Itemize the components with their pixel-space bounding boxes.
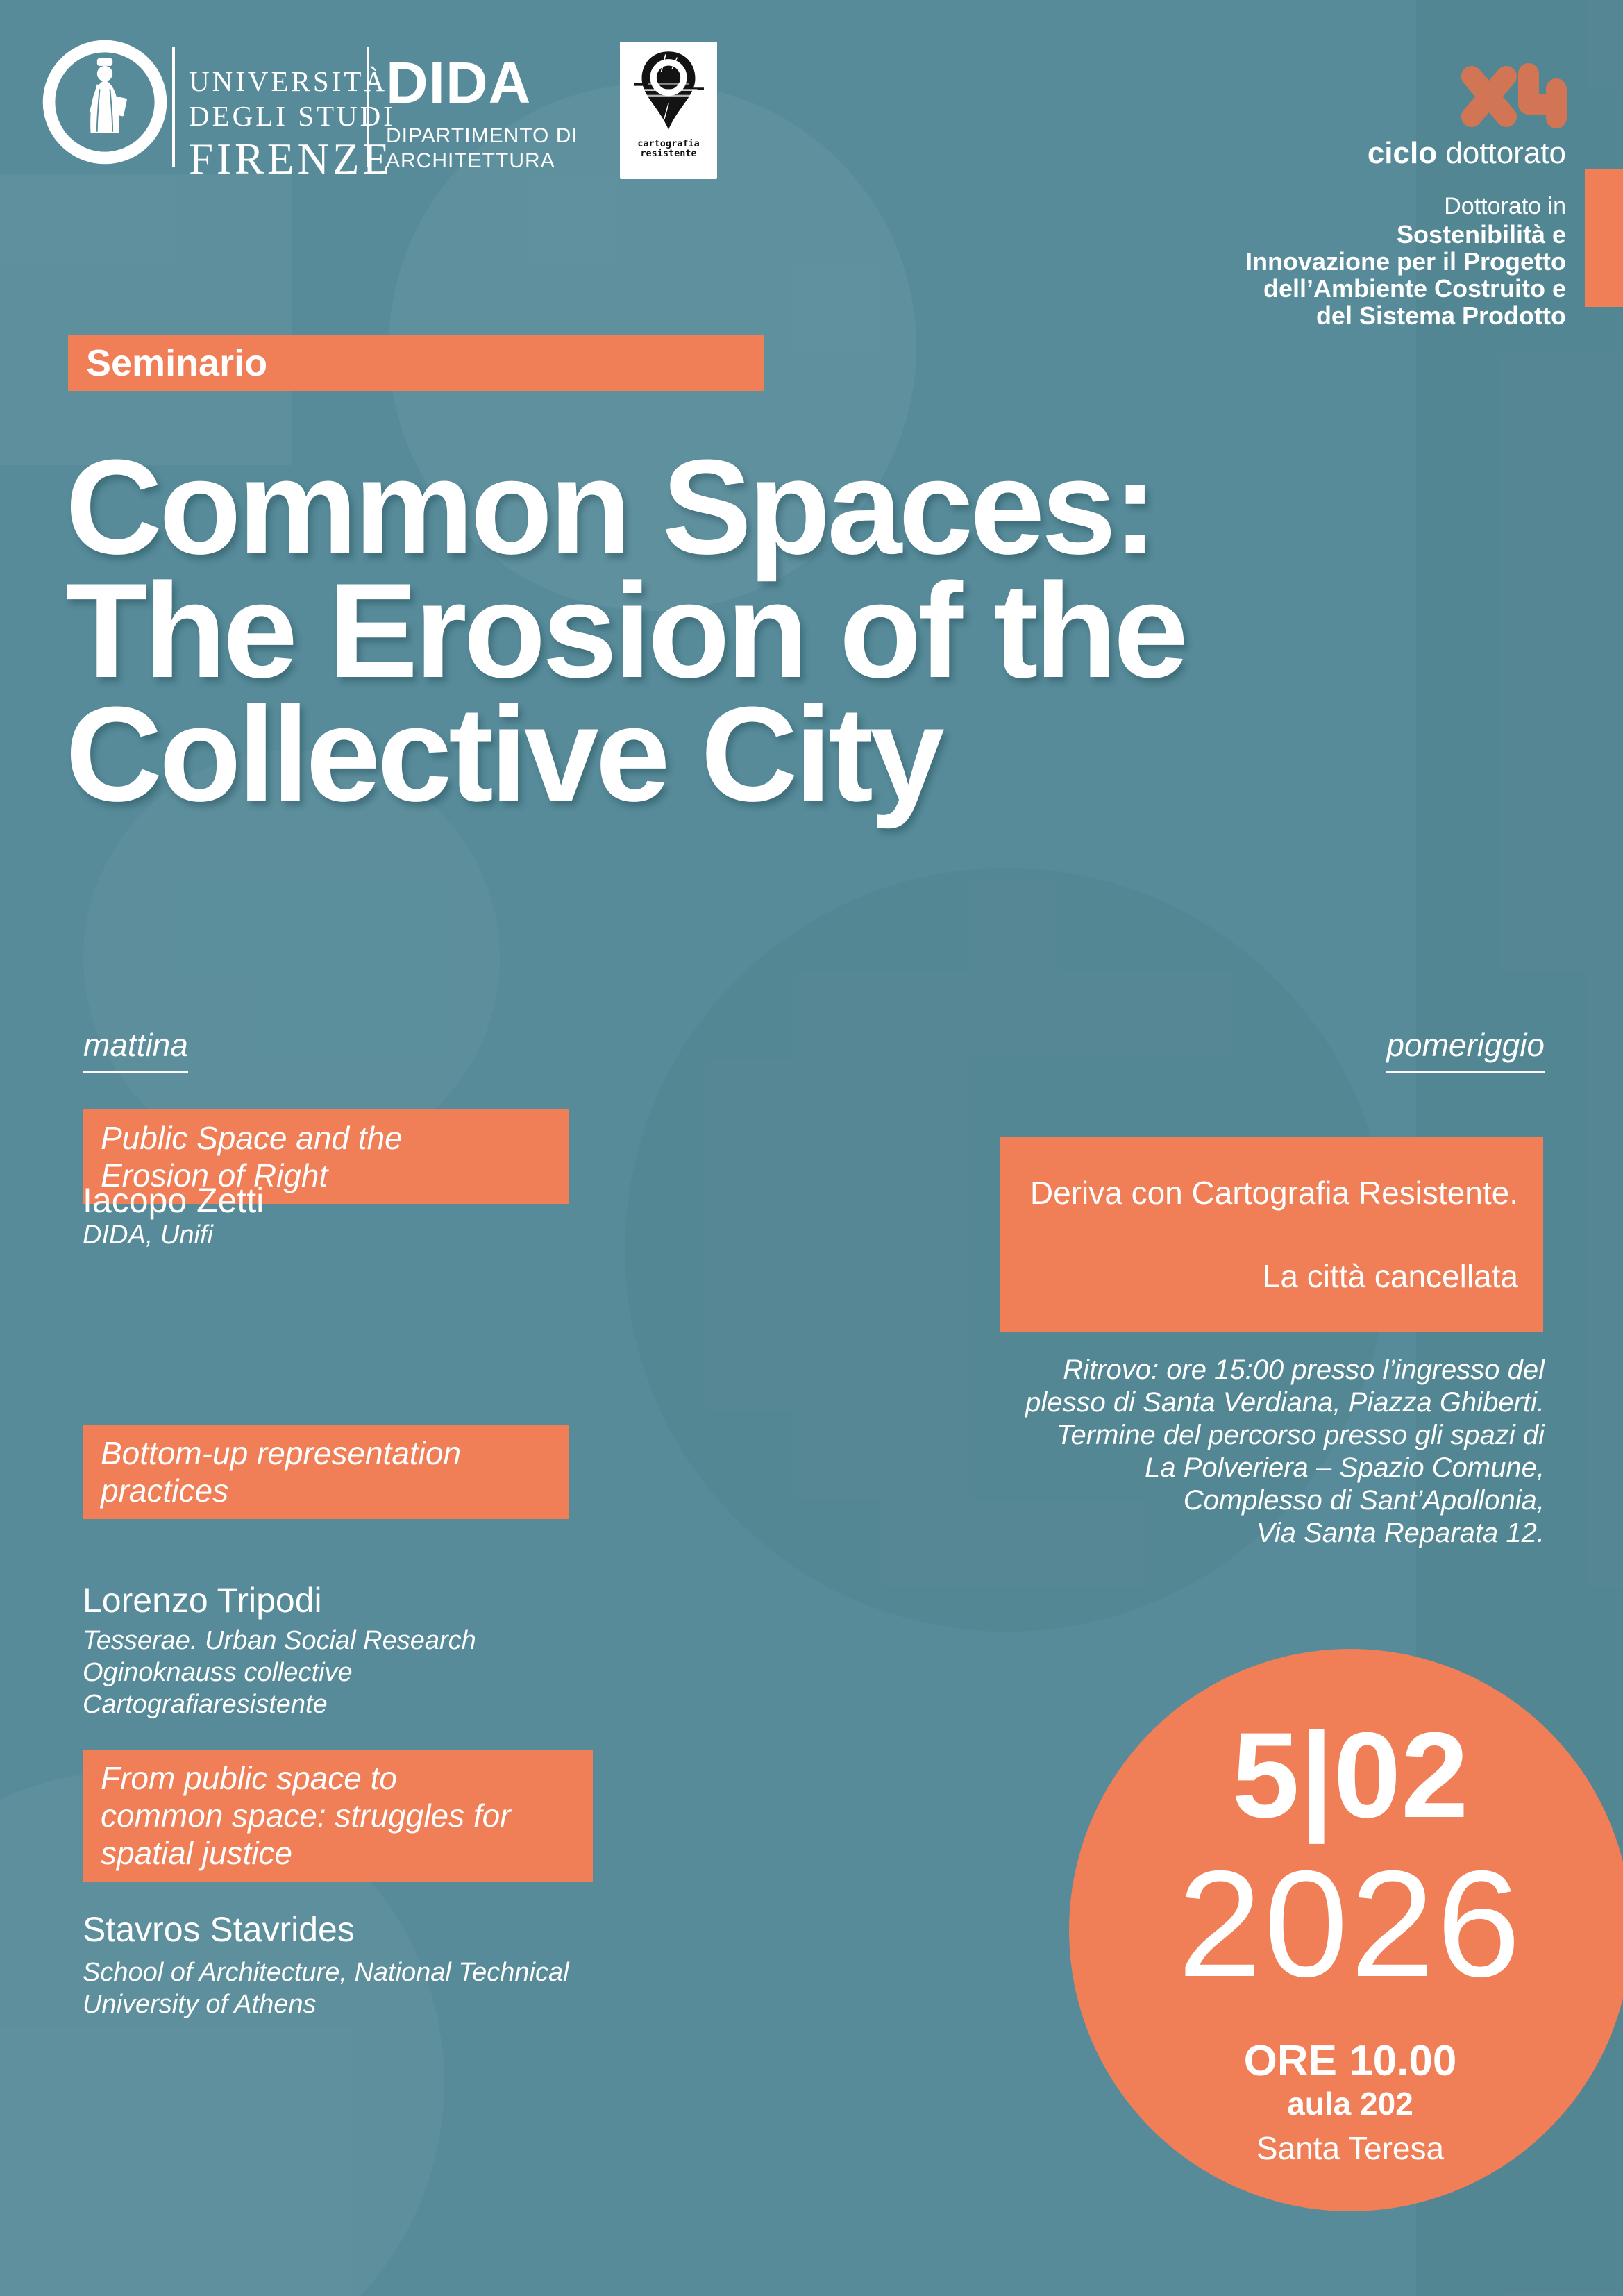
affiliation-line: Tesserae. Urban Social Research: [83, 1625, 476, 1657]
dida-logo: DIDA DIPARTIMENTO DI ARCHITETTURA: [386, 51, 578, 174]
morning-section-label: mattina: [83, 1026, 188, 1073]
phd-intro: Dottorato in: [1122, 192, 1566, 221]
speaker-name: Iacopo Zetti: [83, 1180, 264, 1221]
cartografia-resistente-logo: cartografia resistente: [620, 42, 717, 179]
cartografia-logo-text: cartografia resistente: [637, 139, 699, 158]
header-divider: [172, 47, 175, 167]
title-line: Collective City: [65, 693, 1185, 816]
affiliation-line: Oginoknauss collective: [83, 1657, 476, 1689]
afternoon-section-label: pomeriggio: [1386, 1026, 1545, 1073]
dida-dept-line: DIPARTIMENTO DI: [386, 124, 578, 149]
afternoon-title-box: Deriva con Cartografia Resistente. La ci…: [1000, 1137, 1543, 1332]
phd-line: del Sistema Prodotto: [1122, 302, 1566, 329]
phd-line: Innovazione per il Progetto: [1122, 248, 1566, 275]
afternoon-details-line: Complesso di Sant’Apollonia,: [920, 1484, 1545, 1517]
xli-cycle-logo: [1456, 62, 1569, 131]
session-title-box: From public space to common space: strug…: [83, 1750, 593, 1882]
afternoon-details: Ritrovo: ore 15:00 presso l’ingresso del…: [920, 1354, 1545, 1550]
afternoon-details-line: Via Santa Reparata 12.: [920, 1517, 1545, 1550]
dida-dept-line: ARCHITETTURA: [386, 149, 578, 174]
affiliation-line: Cartografiaresistente: [83, 1689, 476, 1720]
ciclo-rest: dottorato: [1437, 136, 1566, 170]
speaker-affiliation: DIDA, Unifi: [83, 1219, 213, 1251]
university-line: DEGLI STUDI: [189, 99, 396, 133]
seminario-badge: Seminario: [68, 335, 764, 391]
university-seal: FLORENTINA·STUDIORUM·UNIVERSITAS: [40, 36, 169, 168]
afternoon-details-line: plesso di Santa Verdiana, Piazza Ghibert…: [920, 1386, 1545, 1419]
ciclo-bold: ciclo: [1368, 136, 1437, 170]
ciclo-dottorato-label: ciclo dottorato: [1368, 136, 1566, 171]
accent-side-bar: [1585, 169, 1623, 307]
affiliation-line: DIDA, Unifi: [83, 1219, 213, 1251]
event-date-circle: 5|02 2026 ORE 10.00 aula 202 Santa Teres…: [1069, 1649, 1623, 2211]
afternoon-title-line: La città cancellata: [1025, 1234, 1518, 1318]
session-title-line: Public Space and the: [101, 1119, 550, 1157]
university-line: UNIVERSITÀ: [189, 64, 396, 99]
phd-program: Dottorato in Sostenibilità e Innovazione…: [1122, 192, 1566, 329]
header-divider: [367, 47, 369, 167]
page-title: Common Spaces: The Erosion of the Collec…: [65, 446, 1185, 816]
session-title-line: practices: [101, 1472, 550, 1509]
session-title-line: Bottom-up representation: [101, 1434, 550, 1472]
seminar-poster: FLORENTINA·STUDIORUM·UNIVERSITAS UNIVERS…: [0, 0, 1623, 2296]
session-title-line: common space: struggles for: [101, 1797, 575, 1834]
session-title-line: spatial justice: [101, 1834, 575, 1872]
university-name: UNIVERSITÀ DEGLI STUDI FIRENZE: [189, 64, 396, 182]
speaker-name: Lorenzo Tripodi: [83, 1580, 322, 1620]
background-shape: [0, 174, 292, 465]
afternoon-title-line: Deriva con Cartografia Resistente.: [1025, 1151, 1518, 1234]
affiliation-line: University of Athens: [83, 1988, 569, 2020]
afternoon-details-line: Termine del percorso presso gli spazi di: [920, 1419, 1545, 1452]
afternoon-details-line: Ritrovo: ore 15:00 presso l’ingresso del: [920, 1354, 1545, 1386]
afternoon-details-line: La Polveriera – Spazio Comune,: [920, 1452, 1545, 1484]
speaker-affiliation: School of Architecture, National Technic…: [83, 1956, 569, 2020]
university-line: FIRENZE: [189, 136, 396, 182]
title-line: The Erosion of the: [65, 569, 1185, 693]
affiliation-line: School of Architecture, National Technic…: [83, 1956, 569, 1988]
speaker-name: Stavros Stavrides: [83, 1909, 355, 1950]
event-time: ORE 10.00: [1069, 2036, 1623, 2086]
event-day-month: 5|02: [1069, 1715, 1623, 1836]
phd-line: dell’Ambiente Costruito e: [1122, 275, 1566, 302]
session-title-line: From public space to: [101, 1759, 575, 1797]
phd-line: Sostenibilità e: [1122, 221, 1566, 248]
speaker-affiliation: Tesserae. Urban Social Research Oginokna…: [83, 1625, 476, 1720]
event-year: 2026: [1069, 1849, 1623, 2000]
session-title-box: Bottom-up representation practices: [83, 1425, 569, 1519]
map-pin-icon: [632, 47, 705, 137]
event-room: aula 202: [1069, 2085, 1623, 2122]
dida-name: DIDA: [386, 51, 578, 114]
event-venue: Santa Teresa: [1069, 2129, 1623, 2167]
title-line: Common Spaces:: [65, 446, 1185, 569]
